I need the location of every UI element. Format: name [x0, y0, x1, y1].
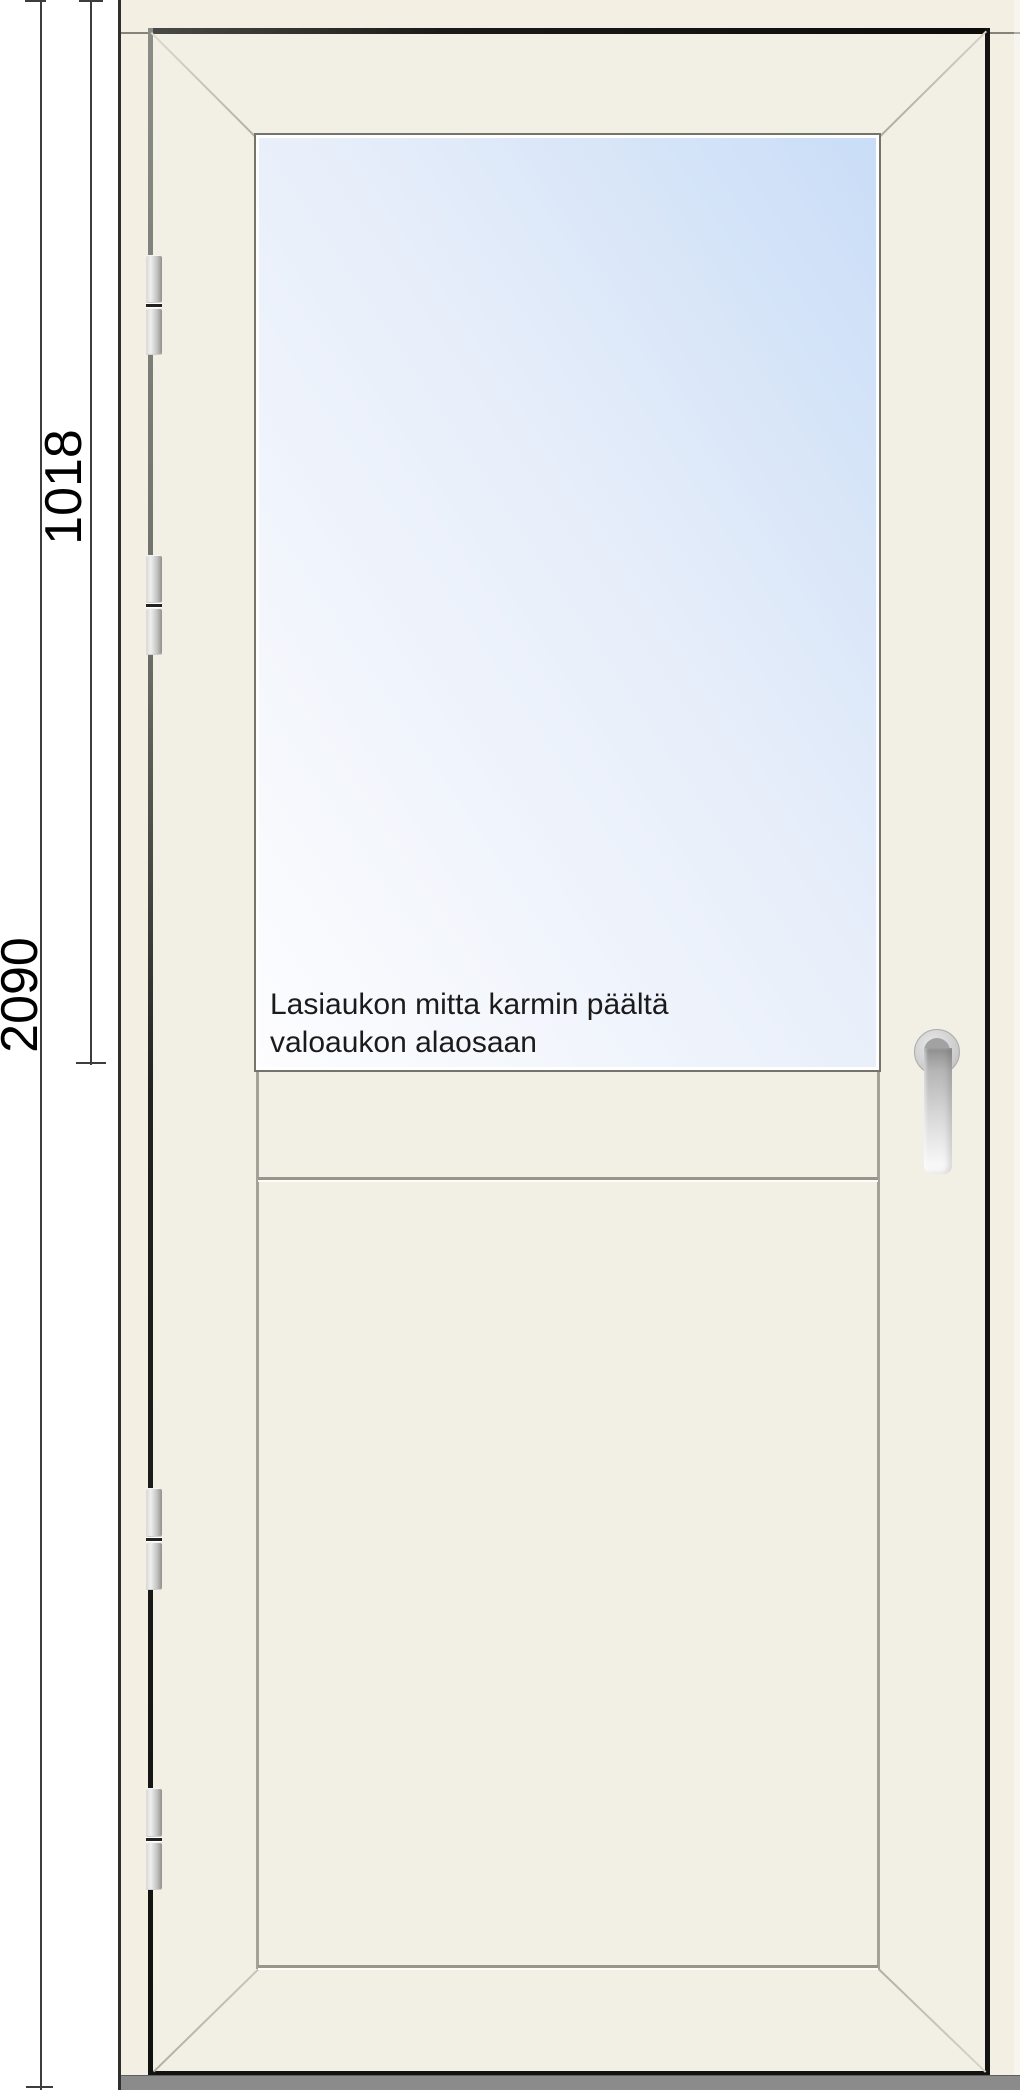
- leaf-outline-top: [148, 28, 990, 34]
- glass-annotation-line1: Lasiaukon mitta karmin päältä: [270, 986, 669, 1024]
- dimension-label-glass-opening: 1018: [38, 429, 90, 545]
- hinge-4-upper-barrel: [146, 1788, 162, 1837]
- stile-line-right: [877, 1072, 880, 1969]
- hinge-3-lower-barrel: [146, 1542, 162, 1591]
- glass-annotation-line2: valoaukon alaosaan: [270, 1024, 669, 1062]
- glass-pane: [254, 133, 881, 1072]
- hinge-1-upper-barrel: [146, 255, 162, 303]
- door-handle: [924, 1048, 952, 1174]
- hinge-2-pin-line: [146, 603, 162, 608]
- hinge-4: [146, 1788, 162, 1890]
- hinge-1-pin-line: [146, 303, 162, 308]
- dimension-tick-glass-bottom: [76, 1062, 106, 1064]
- dimension-tick-glass-top: [79, 0, 103, 2]
- leaf-outline-bottom: [148, 2071, 990, 2075]
- mid-rail-line: [258, 1177, 878, 1182]
- hinge-3-upper-barrel: [146, 1488, 162, 1537]
- stile-line-left: [256, 1072, 259, 1969]
- dimension-tick-total-top: [25, 0, 46, 2]
- hinge-4-pin-line: [146, 1837, 162, 1842]
- dimension-label-total-height: 2090: [0, 937, 46, 1053]
- frame-left-edge-line: [118, 0, 121, 2090]
- hinge-1: [146, 255, 162, 355]
- hinge-2-upper-barrel: [146, 555, 162, 603]
- door-technical-drawing: 2090 1018 Lasiaukon mitta karmin päältä …: [0, 0, 1020, 2090]
- glass-annotation: Lasiaukon mitta karmin päältä valoaukon …: [270, 986, 669, 1062]
- panel-bottom-line: [258, 1965, 878, 1970]
- dimension-tick-total-bottom: [26, 2086, 53, 2088]
- hinge-2: [146, 555, 162, 655]
- frame-right-edge-highlight: [1014, 0, 1020, 2075]
- hinge-2-lower-barrel: [146, 608, 162, 656]
- hinge-4-lower-barrel: [146, 1842, 162, 1891]
- hinge-1-lower-barrel: [146, 308, 162, 356]
- threshold-sill: [121, 2075, 1020, 2090]
- hinge-3-pin-line: [146, 1537, 162, 1542]
- leaf-outline-right: [985, 28, 990, 2075]
- hinge-3: [146, 1488, 162, 1590]
